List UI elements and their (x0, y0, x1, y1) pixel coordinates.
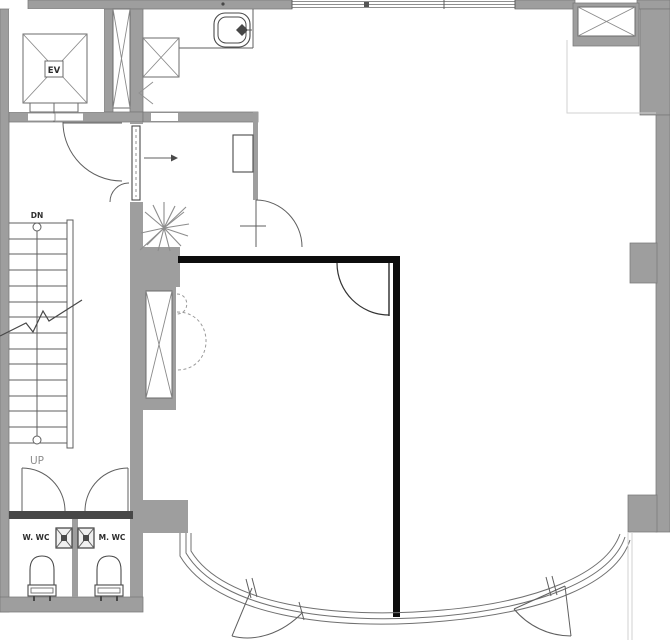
hall-entry-door (63, 122, 122, 181)
partition-walls (178, 256, 400, 617)
toilet (28, 556, 56, 601)
toilet (95, 556, 123, 601)
facade-door-left (232, 578, 304, 638)
slide-arrow-icon (171, 155, 178, 162)
elevator-lobby-opening (28, 114, 83, 121)
wc-front-wall (9, 511, 133, 519)
duct-shaft-left (146, 291, 206, 398)
mullion-dot (364, 2, 369, 7)
door-swing-arc (256, 200, 302, 247)
window-top (292, 0, 515, 9)
dashed-swing-arc-large (177, 312, 206, 370)
wc-area: W. WC M. WC (9, 468, 133, 601)
door-swing-arc (337, 263, 389, 315)
duct-shaft-top (139, 38, 179, 104)
wc-right-label: M. WC (99, 533, 126, 542)
floor-plan-canvas: EV (0, 0, 670, 640)
elevator-door-mark (54, 103, 78, 112)
door-swing-arc (22, 468, 65, 511)
door-leaf (232, 588, 252, 636)
elevator-door-mark (30, 103, 54, 112)
facade-door-right (514, 576, 571, 636)
dashed-swing-arc-small (177, 294, 187, 314)
wc-left-label: W. WC (23, 533, 50, 542)
elevator: EV (9, 9, 104, 122)
wash-basin (78, 528, 94, 548)
stair-stringer (67, 220, 73, 448)
duct-shaft-elevator-side (113, 9, 130, 108)
partition-vertical (393, 256, 400, 617)
stair-down-label: DN (31, 211, 44, 220)
equipment-box (233, 135, 253, 172)
wash-basin (56, 528, 72, 548)
stairwell: DN UP (0, 211, 82, 467)
pocket-door-arc (110, 183, 129, 202)
door-swing-arc (232, 612, 303, 638)
door-swing-arc (63, 122, 122, 181)
duct-shaft-top-right (573, 3, 639, 46)
stair-start-marker (33, 223, 41, 231)
door-swing-arc (514, 609, 571, 636)
curtain-wall (180, 532, 632, 640)
elevator-label: EV (48, 66, 61, 76)
plant (140, 202, 189, 251)
stair-start-marker (33, 436, 41, 444)
door-swing-arc (85, 468, 128, 511)
floor-plan: EV (0, 0, 670, 640)
partition-horizontal (178, 256, 400, 263)
stair-up-label: UP (30, 455, 44, 467)
